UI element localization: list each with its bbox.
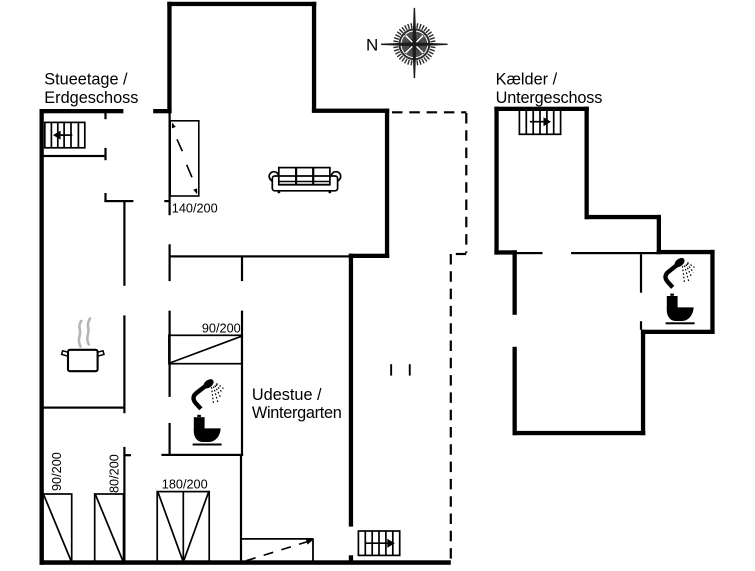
svg-text:Udestue /: Udestue / — [252, 386, 322, 404]
svg-text:140/200: 140/200 — [172, 202, 218, 216]
svg-text:Wintergarten: Wintergarten — [252, 404, 342, 422]
svg-text:Untergeschoss: Untergeschoss — [496, 89, 603, 107]
svg-text:180/200: 180/200 — [162, 478, 208, 492]
svg-text:Kælder /: Kælder / — [496, 70, 558, 88]
svg-text:Stueetage /: Stueetage / — [44, 70, 128, 88]
svg-text:90/200: 90/200 — [50, 452, 64, 491]
svg-text:80/200: 80/200 — [108, 454, 122, 493]
svg-text:N: N — [366, 35, 378, 54]
svg-text:Erdgeschoss: Erdgeschoss — [44, 89, 138, 107]
svg-text:90/200: 90/200 — [202, 321, 241, 335]
